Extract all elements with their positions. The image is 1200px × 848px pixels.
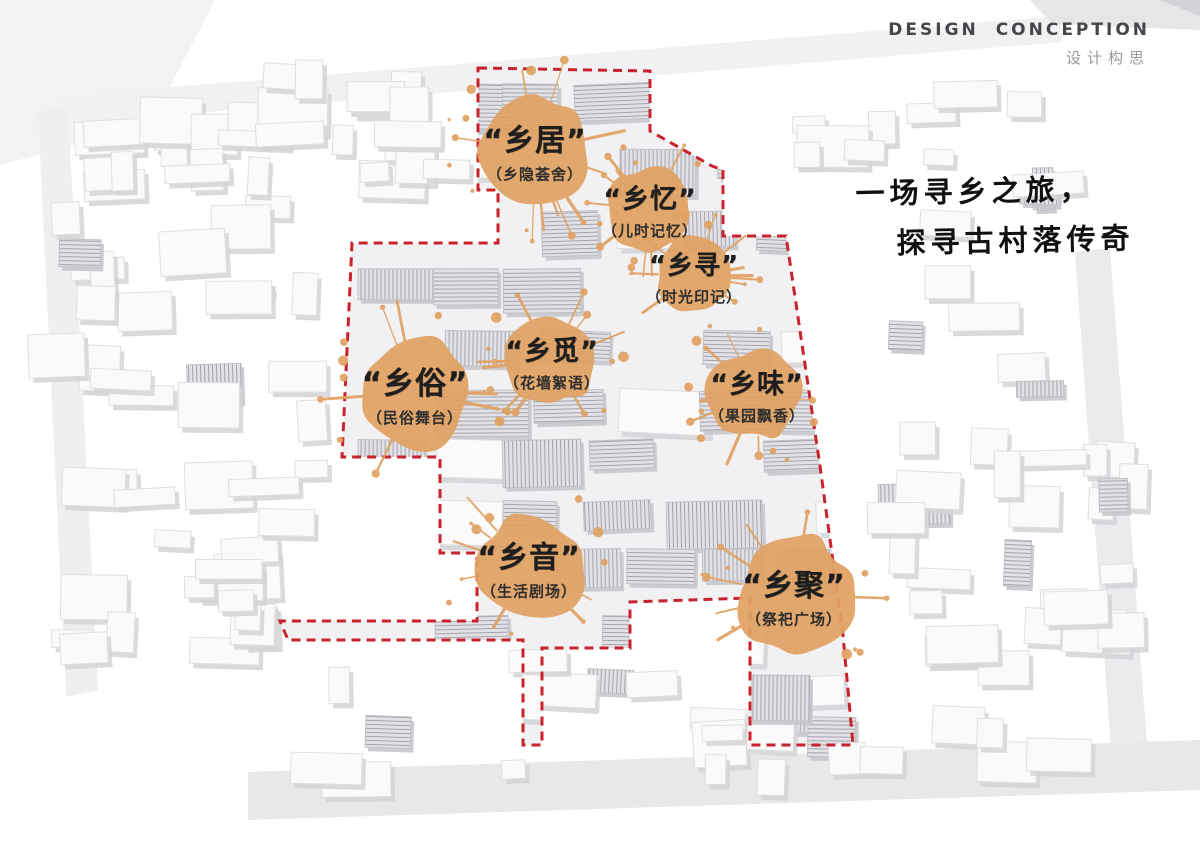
tagline-line-1: 一场寻乡之旅，	[855, 165, 1134, 213]
marker-label: “乡味”	[709, 362, 805, 401]
page-title-block: DESIGN CONCEPTION 设计构思	[888, 20, 1150, 68]
marker-label: “乡音”	[477, 533, 580, 577]
calligraphy-tagline: 一场寻乡之旅， 探寻古村落传奇	[855, 165, 1135, 263]
splash-marker-5: “乡俗”（民俗舞台）	[362, 358, 469, 428]
marker-label: “乡觅”	[504, 329, 600, 368]
marker-subtitle: （生活剧场）	[477, 581, 580, 602]
design-conception-board: “乡居”（乡隐荟舍）“乡忆”（儿时记忆）“乡寻”（时光印记）“乡觅”（花墙絮语）…	[0, 0, 1200, 848]
splash-marker-1: “乡居”（乡隐荟舍）	[483, 116, 586, 185]
marker-label: “乡俗”	[362, 358, 469, 403]
splash-marker-7: “乡音”（生活剧场）	[477, 533, 580, 602]
page-title: DESIGN CONCEPTION	[888, 20, 1150, 40]
marker-subtitle: （乡隐荟舍）	[483, 164, 586, 185]
splash-marker-4: “乡觅”（花墙絮语）	[504, 329, 600, 393]
marker-label: “乡寻”	[646, 245, 742, 282]
marker-subtitle: （花墙絮语）	[504, 372, 600, 393]
marker-label: “乡居”	[483, 116, 586, 160]
village-map	[0, 0, 1200, 848]
splash-marker-2: “乡忆”（儿时记忆）	[602, 177, 698, 241]
splash-marker-8: “乡聚”（祭祀广场）	[742, 561, 845, 630]
splash-marker-3: “乡寻”（时光印记）	[646, 245, 742, 307]
marker-subtitle: （时光印记）	[646, 286, 742, 307]
page-subtitle: 设计构思	[888, 47, 1150, 68]
marker-subtitle: （果园飘香）	[709, 405, 805, 426]
splash-marker-6: “乡味”（果园飘香）	[709, 362, 805, 426]
marker-subtitle: （民俗舞台）	[362, 407, 469, 428]
marker-label: “乡忆”	[602, 177, 698, 216]
tagline-line-2: 探寻古村落传奇	[896, 215, 1135, 262]
marker-subtitle: （儿时记忆）	[602, 220, 698, 241]
marker-label: “乡聚”	[742, 561, 845, 605]
marker-subtitle: （祭祀广场）	[742, 609, 845, 630]
